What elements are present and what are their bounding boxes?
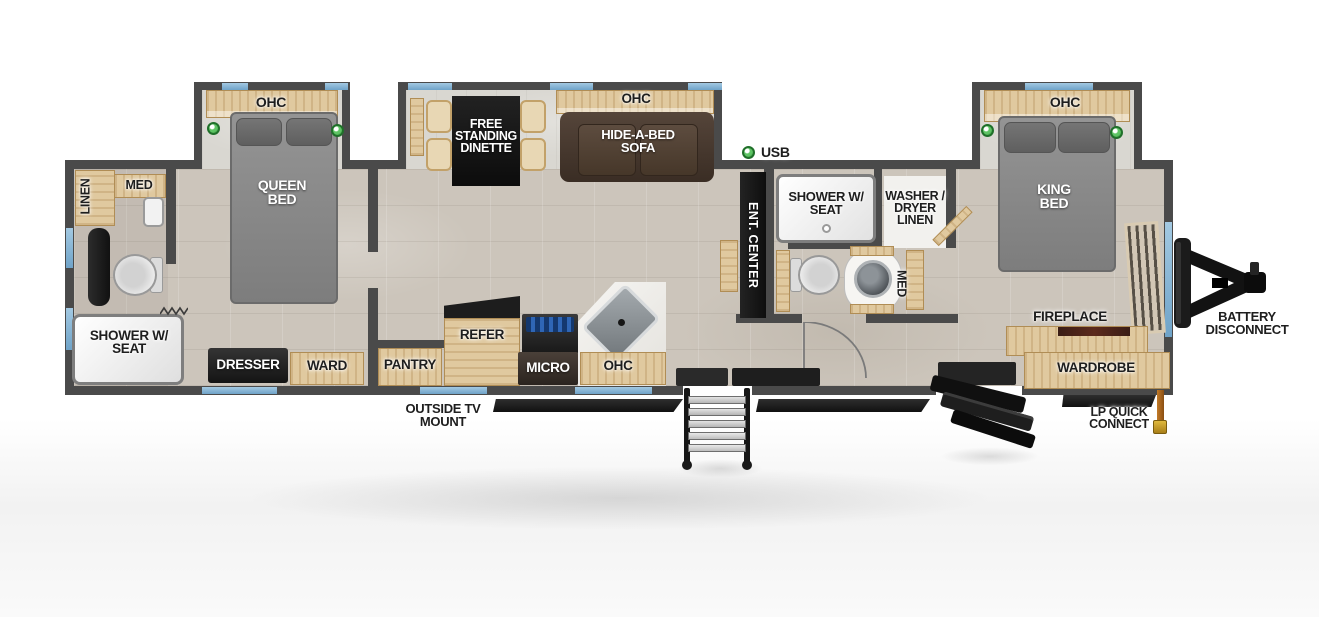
window [222,83,248,90]
window [66,228,73,268]
sink-drain [618,319,625,326]
dinette-chair [426,100,452,133]
sofa-ohc-label: OHC [596,91,676,107]
window [1025,83,1093,90]
micro-label: MICRO [520,359,576,376]
dinette-chair [520,138,546,171]
battery-disconnect-label: BATTERY DISCONNECT [1196,306,1298,342]
queen-slide-wall [194,82,202,169]
linen-label: LINEN [79,170,94,224]
reading-light-indicator [981,124,994,137]
king-bed-label: KING BED [1024,180,1084,214]
window [325,83,348,90]
kitchen-ohc-label: OHC [576,357,660,374]
awning-bar [756,399,930,412]
step-wheel [742,460,752,470]
reading-light-indicator [1110,126,1123,139]
king-slide-wall [1134,82,1142,169]
rear-bath-wall [166,168,176,264]
toilet-platform [776,250,790,312]
king-pillow [1058,122,1110,153]
step-rung [688,396,746,404]
queen-room-wall [368,288,378,386]
dinette-slide-wall [398,82,406,169]
window [408,83,452,90]
king-ohc-label: OHC [1025,95,1105,111]
dinette-tv-panel [410,98,424,156]
window [1165,222,1172,337]
window [202,387,277,394]
king-slide-wall [972,82,980,169]
step-rung [688,444,746,452]
usb-indicator [742,146,755,159]
ground-shadow [90,462,1150,552]
dinette-chair [520,100,546,133]
accordion-door-icon [160,306,188,316]
step-rung [688,420,746,428]
window [575,387,652,394]
vanity-counter [88,228,110,306]
cooktop-burners [526,317,574,332]
king-pillow [1004,122,1056,153]
dinette-slide-wall [714,82,722,169]
vanity-ledge [850,304,894,314]
rear-shower-label: SHOWER W/ SEAT [88,326,170,358]
reading-light-indicator [331,124,344,137]
ent-center-label: ENT. CENTER [740,176,766,314]
bath-wall [866,314,958,323]
usb-label: USB [761,145,797,161]
wardrobe-label: WARDROBE [1050,359,1142,377]
pantry-label: PANTRY [380,356,440,373]
window [688,83,722,90]
entry-steps [684,388,750,468]
wall-top [722,160,972,169]
bath-sink [143,197,164,227]
floorplan-canvas: LINEN MED SHOWER W/ SEAT OHC QUEEN BED D… [0,0,1319,617]
outside-tv-mount-label: OUTSIDE TV MOUNT [402,398,484,434]
fireplace-insert [1058,327,1130,336]
reading-light-indicator [207,122,220,135]
queen-slide-wall [342,82,350,169]
counter-cabinet [720,240,738,292]
med-cabinet-mid [906,250,924,310]
mid-shower-label: SHOWER W/ SEAT [786,188,866,220]
toilet [113,254,157,296]
queen-ohc-label: OHC [231,95,311,111]
window [420,387,487,394]
step-rung [688,432,746,440]
queen-pillow [286,118,332,146]
ward-label: WARD [294,357,360,374]
dinette-chair [426,138,452,171]
refer-label: REFER [448,326,516,343]
queen-pillow [236,118,282,146]
step-rung [688,408,746,416]
window [550,83,593,90]
awning-bar [493,399,683,412]
mid-med-label: MED [894,262,909,306]
shower-drain [822,224,831,233]
entry-mat [676,368,728,386]
med-label: MED [116,178,162,193]
wall-bottom [752,386,936,395]
queen-bed-label: QUEEN BED [250,176,314,210]
queen-room-wall [368,168,378,252]
dinette-label: FREE STANDING DINETTE [454,108,518,164]
sofa-label: HIDE-A-BED SOFA [586,126,690,158]
lp-pipe [1157,390,1164,424]
vanity-ledge [850,246,894,256]
step-wheel [682,460,692,470]
fireplace-label: FIREPLACE [1028,308,1112,326]
pantry-wall [370,340,452,348]
dresser-label: DRESSER [210,356,286,373]
washer-dryer-label: WASHER / DRYER LINEN [885,182,945,234]
round-sink [854,260,892,298]
entry-mat [732,368,820,386]
toilet [798,255,840,295]
folded-steps [926,382,1042,454]
lp-quick-connect-label: LP QUICK CONNECT [1080,400,1158,436]
